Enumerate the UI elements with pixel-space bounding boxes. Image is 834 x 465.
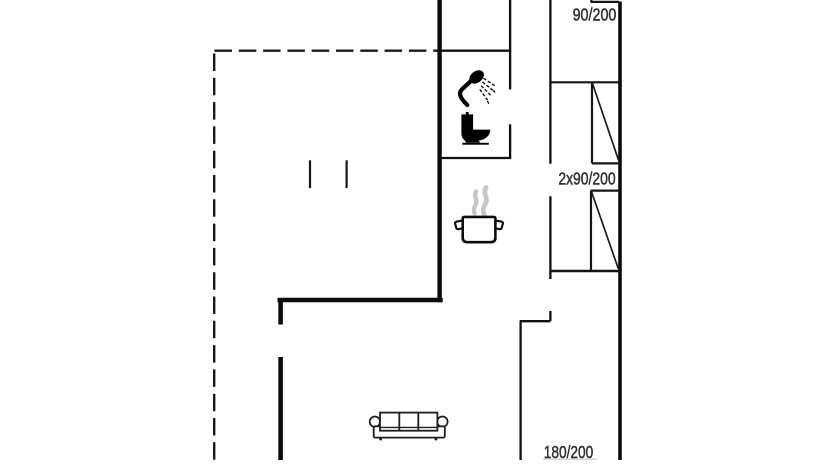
svg-text:90/200: 90/200 <box>573 5 617 25</box>
svg-text:2x90/200: 2x90/200 <box>558 169 615 189</box>
svg-text:180/200: 180/200 <box>544 442 594 460</box>
